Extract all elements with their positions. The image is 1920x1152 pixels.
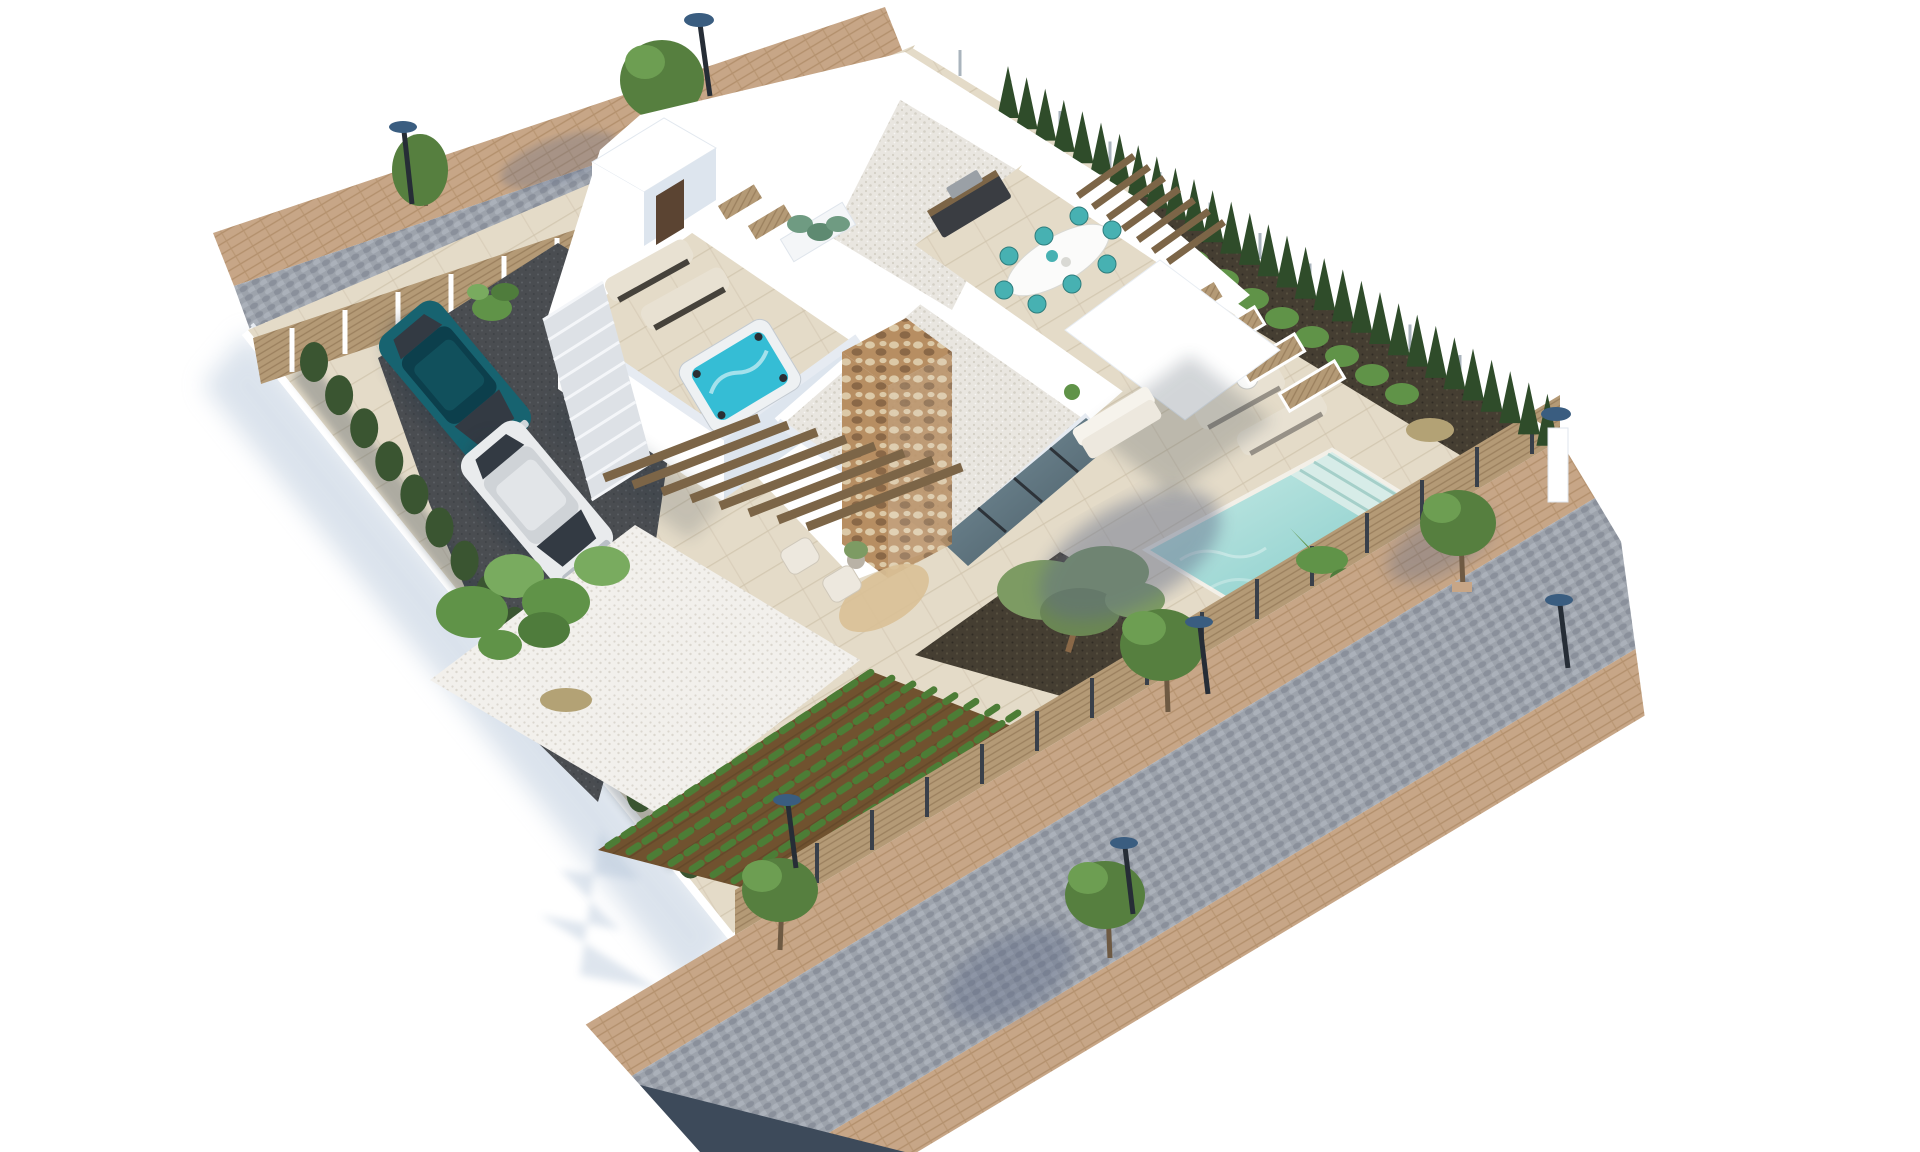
dining-chair	[1070, 207, 1088, 225]
top-street-tree	[392, 134, 448, 206]
lamp-head	[773, 794, 801, 806]
potted-olive	[844, 541, 868, 559]
tree-canopy-light	[1122, 611, 1166, 645]
tree-canopy-light	[1423, 493, 1461, 523]
leafy-shrub	[1355, 364, 1389, 386]
planter-bush	[826, 216, 850, 232]
lamp-head	[389, 121, 417, 133]
hedge-shrub	[451, 541, 479, 581]
potted-plant	[1064, 384, 1080, 400]
leaf-cluster-light	[467, 284, 489, 300]
dining-chair	[1063, 275, 1081, 293]
dining-chair	[1035, 227, 1053, 245]
tree-canopy	[392, 134, 448, 206]
lamp-head	[684, 13, 714, 27]
dining-chair	[1098, 255, 1116, 273]
dining-chair	[995, 281, 1013, 299]
shrub	[574, 546, 630, 586]
dining-chair	[1000, 247, 1018, 265]
lamp-head	[1545, 594, 1573, 606]
grass-tuft	[540, 688, 592, 712]
lamp-head	[1541, 407, 1571, 421]
tree-planter	[1452, 582, 1472, 592]
shrub	[478, 630, 522, 660]
villa-aerial-render	[0, 0, 1920, 1152]
ornamental-grass	[1406, 418, 1454, 442]
hedge-shrub	[375, 441, 403, 481]
leaf-cluster-dark	[491, 283, 519, 301]
table-centerpiece	[1061, 257, 1071, 267]
shrub-dark	[518, 612, 570, 648]
leafy-shrub	[1265, 307, 1299, 329]
table-centerpiece	[1046, 250, 1058, 262]
dining-chair	[1103, 221, 1121, 239]
hedge-shrub	[400, 474, 428, 514]
lamp-head	[1110, 837, 1138, 849]
hedge-shrub	[325, 375, 353, 415]
leafy-shrub	[1385, 383, 1419, 405]
villa-render-page	[0, 0, 1920, 1152]
hedge-shrub	[350, 408, 378, 448]
hedge-shrub	[300, 342, 328, 382]
hedge-shrub	[426, 508, 454, 548]
tree-canopy-light	[625, 45, 665, 79]
tree-canopy-light	[742, 860, 782, 892]
corner-post	[1548, 428, 1568, 502]
tree-canopy-light	[1068, 862, 1108, 894]
lamp-head	[1185, 616, 1213, 628]
dining-chair	[1028, 295, 1046, 313]
